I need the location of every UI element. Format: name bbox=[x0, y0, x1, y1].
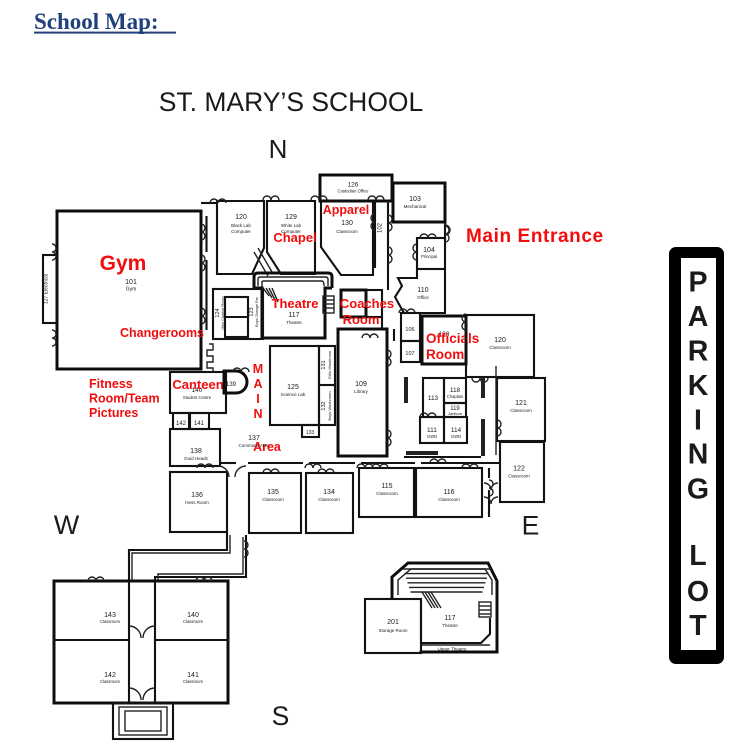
svg-text:110: 110 bbox=[417, 287, 428, 294]
svg-text:Apparel: Apparel bbox=[323, 203, 370, 217]
svg-text:138: 138 bbox=[190, 448, 202, 455]
svg-text:118: 118 bbox=[450, 387, 461, 394]
svg-text:Janitors: Janitors bbox=[448, 411, 462, 416]
svg-text:114: 114 bbox=[451, 427, 462, 434]
svg-text:N: N bbox=[253, 407, 262, 421]
svg-text:141: 141 bbox=[194, 421, 205, 427]
svg-text:Computer: Computer bbox=[231, 229, 251, 234]
svg-text:143: 143 bbox=[104, 612, 116, 619]
svg-text:Theatre: Theatre bbox=[272, 296, 319, 311]
svg-text:T: T bbox=[689, 610, 707, 642]
svg-text:129: 129 bbox=[285, 214, 297, 221]
svg-text:106: 106 bbox=[405, 327, 414, 333]
svg-text:Room: Room bbox=[343, 312, 380, 327]
svg-text:School Map:: School Map: bbox=[34, 9, 159, 34]
svg-text:121: 121 bbox=[515, 400, 527, 407]
svg-text:Classroom: Classroom bbox=[100, 679, 121, 684]
svg-text:Classroom: Classroom bbox=[100, 619, 121, 624]
svg-text:Gym: Gym bbox=[126, 287, 137, 293]
svg-text:Boys Washroom: Boys Washroom bbox=[327, 391, 332, 421]
svg-text:GWD: GWD bbox=[427, 434, 437, 439]
svg-text:W: W bbox=[54, 510, 80, 540]
svg-text:Classroom: Classroom bbox=[183, 679, 204, 684]
svg-text:P: P bbox=[688, 266, 707, 298]
svg-text:L: L bbox=[689, 540, 706, 572]
svg-text:R: R bbox=[688, 336, 709, 368]
svg-text:120: 120 bbox=[235, 214, 247, 221]
svg-text:S: S bbox=[272, 701, 290, 731]
svg-text:104: 104 bbox=[423, 247, 435, 254]
svg-text:Classroom: Classroom bbox=[183, 619, 204, 624]
svg-text:Hess Room: Hess Room bbox=[185, 500, 209, 505]
svg-text:109: 109 bbox=[355, 381, 367, 388]
svg-text:A: A bbox=[253, 377, 262, 391]
svg-text:Main Entrance: Main Entrance bbox=[466, 226, 604, 247]
svg-text:Pictures: Pictures bbox=[89, 406, 138, 420]
svg-text:140: 140 bbox=[187, 612, 199, 619]
svg-text:102: 102 bbox=[378, 222, 384, 233]
svg-text:139: 139 bbox=[226, 382, 237, 388]
svg-text:136: 136 bbox=[191, 492, 203, 499]
svg-text:Coaches: Coaches bbox=[340, 296, 394, 311]
svg-text:122: 122 bbox=[513, 466, 525, 473]
svg-text:Theatre: Theatre bbox=[442, 623, 458, 628]
svg-text:Girls Washroom: Girls Washroom bbox=[327, 350, 332, 379]
svg-text:I: I bbox=[694, 405, 702, 437]
svg-text:117: 117 bbox=[444, 615, 455, 622]
svg-text:101: 101 bbox=[125, 279, 137, 286]
svg-text:133: 133 bbox=[306, 430, 315, 436]
svg-text:117: 117 bbox=[288, 312, 299, 319]
svg-text:N: N bbox=[269, 134, 288, 164]
svg-text:Boys Change Rm: Boys Change Rm bbox=[255, 297, 259, 327]
svg-text:Officials: Officials bbox=[426, 331, 479, 346]
svg-text:Classroom: Classroom bbox=[508, 474, 530, 479]
svg-text:130: 130 bbox=[341, 220, 353, 227]
svg-text:Principal: Principal bbox=[421, 254, 437, 259]
svg-text:Commons Area: Commons Area bbox=[238, 443, 270, 448]
svg-text:134: 134 bbox=[323, 489, 335, 496]
svg-text:Room/Team: Room/Team bbox=[89, 392, 160, 406]
svg-text:Storage Room: Storage Room bbox=[378, 628, 407, 633]
svg-text:113: 113 bbox=[428, 395, 439, 402]
svg-text:125: 125 bbox=[287, 384, 299, 391]
svg-text:Canteen: Canteen bbox=[172, 377, 223, 392]
svg-text:O: O bbox=[687, 576, 709, 608]
svg-text:126: 126 bbox=[348, 182, 359, 189]
svg-text:Mechanical: Mechanical bbox=[404, 204, 427, 209]
svg-text:137: 137 bbox=[248, 435, 260, 442]
svg-text:142: 142 bbox=[104, 672, 116, 679]
svg-text:103: 103 bbox=[409, 196, 421, 203]
svg-text:Classroom: Classroom bbox=[510, 408, 532, 413]
svg-text:Office: Office bbox=[417, 295, 429, 300]
svg-text:Classroom: Classroom bbox=[336, 229, 358, 234]
svg-text:Fitness: Fitness bbox=[89, 377, 133, 391]
svg-text:Upper Theatre: Upper Theatre bbox=[438, 647, 467, 652]
svg-text:Gym: Gym bbox=[100, 252, 147, 275]
svg-text:Theatre: Theatre bbox=[286, 320, 302, 325]
svg-text:Chapel: Chapel bbox=[273, 230, 316, 245]
svg-text:Student Centre: Student Centre bbox=[183, 395, 212, 400]
svg-text:Library: Library bbox=[354, 389, 369, 394]
svg-text:Science Lab: Science Lab bbox=[281, 392, 306, 397]
svg-text:115: 115 bbox=[381, 483, 392, 490]
svg-text:Black Lab: Black Lab bbox=[231, 223, 251, 228]
svg-text:M: M bbox=[253, 362, 263, 376]
svg-text:127 Electrical: 127 Electrical bbox=[44, 274, 50, 304]
svg-text:GWD: GWD bbox=[451, 434, 461, 439]
svg-text:107: 107 bbox=[405, 351, 414, 357]
svg-text:120: 120 bbox=[494, 337, 506, 344]
svg-text:Girls Change Room: Girls Change Room bbox=[221, 296, 225, 329]
svg-text:Guid Heads: Guid Heads bbox=[184, 456, 209, 461]
svg-text:I: I bbox=[256, 392, 259, 406]
svg-text:Classroom: Classroom bbox=[438, 497, 460, 502]
svg-text:Classroom: Classroom bbox=[489, 345, 511, 350]
svg-text:Chaplain: Chaplain bbox=[447, 394, 464, 399]
svg-text:A: A bbox=[688, 301, 709, 333]
svg-text:111: 111 bbox=[427, 427, 437, 434]
svg-text:K: K bbox=[688, 370, 709, 402]
svg-text:ST. MARY’S SCHOOL: ST. MARY’S SCHOOL bbox=[159, 87, 424, 117]
svg-text:Classroom: Classroom bbox=[318, 497, 340, 502]
svg-text:Room: Room bbox=[426, 347, 464, 362]
svg-text:142: 142 bbox=[176, 421, 187, 427]
svg-text:Classroom: Classroom bbox=[262, 497, 284, 502]
svg-text:Custodian Office: Custodian Office bbox=[338, 189, 370, 194]
svg-text:201: 201 bbox=[387, 619, 399, 626]
svg-text:116: 116 bbox=[443, 489, 454, 496]
svg-text:G: G bbox=[687, 474, 709, 506]
svg-text:N: N bbox=[688, 439, 709, 471]
svg-text:Changerooms: Changerooms bbox=[120, 326, 204, 340]
svg-text:White Lab: White Lab bbox=[281, 223, 302, 228]
svg-text:E: E bbox=[522, 511, 540, 541]
svg-text:141: 141 bbox=[187, 672, 199, 679]
svg-text:Classroom: Classroom bbox=[376, 491, 398, 496]
svg-text:135: 135 bbox=[267, 489, 279, 496]
